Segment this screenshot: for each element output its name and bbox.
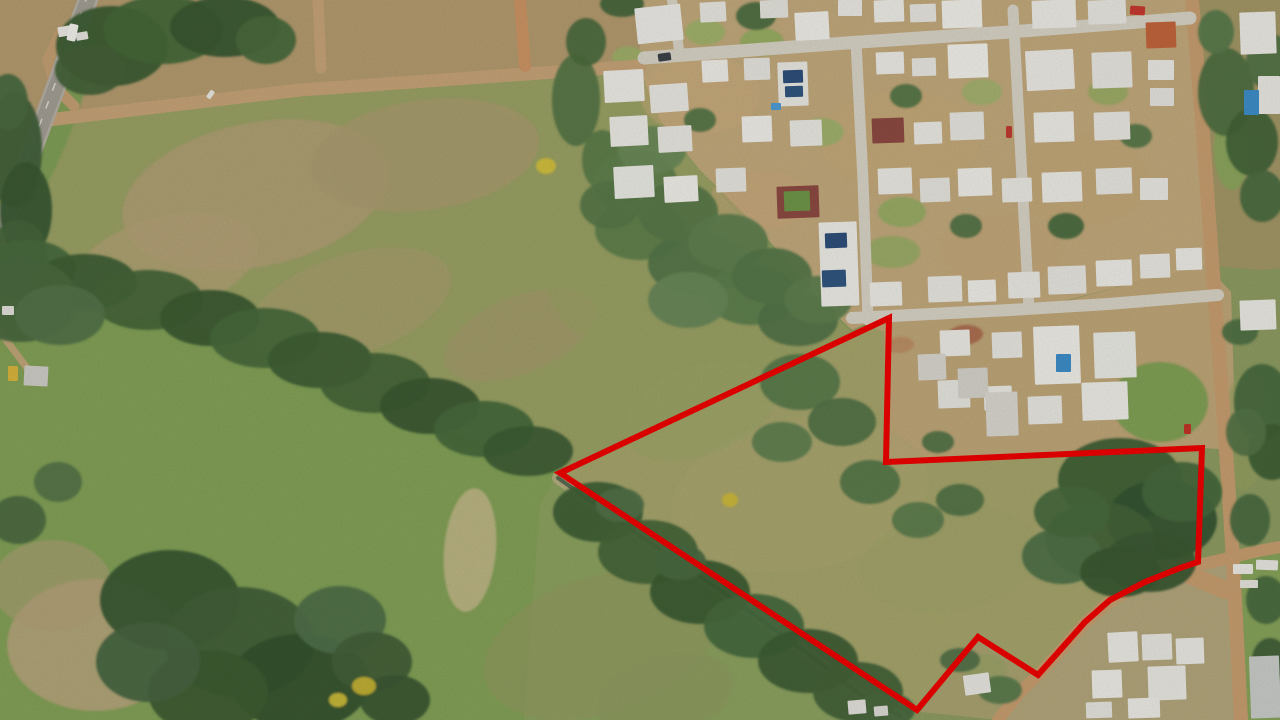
screenshot-stage	[0, 0, 1280, 720]
photo-grain-overlay	[0, 0, 1280, 720]
aerial-photo	[0, 0, 1280, 720]
